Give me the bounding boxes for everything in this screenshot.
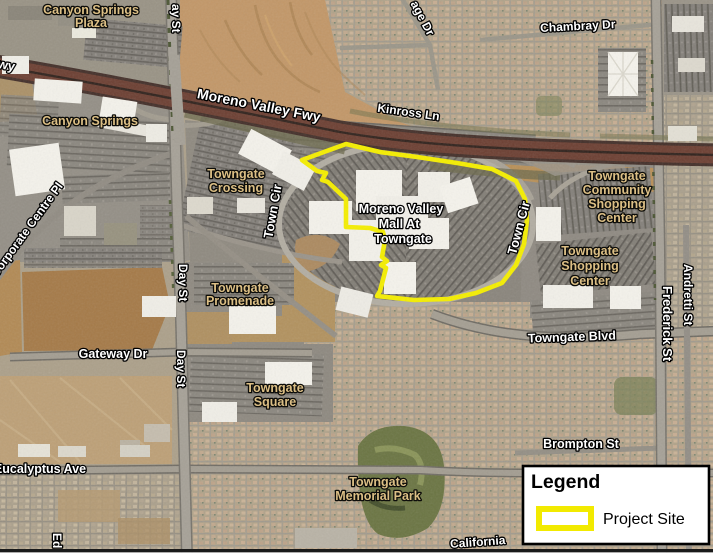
- svg-text:Center: Center: [570, 274, 610, 288]
- svg-text:Center: Center: [597, 211, 637, 225]
- svg-text:Towngate: Towngate: [588, 169, 645, 183]
- svg-text:Project Site: Project Site: [603, 511, 685, 528]
- svg-text:Crossing: Crossing: [209, 181, 263, 195]
- svg-text:Day St: Day St: [174, 350, 188, 387]
- svg-text:Moreno Valley: Moreno Valley: [359, 202, 444, 216]
- svg-text:Frederick St: Frederick St: [660, 286, 675, 362]
- svg-text:Memorial Park: Memorial Park: [335, 489, 421, 503]
- svg-text:Mall At: Mall At: [379, 217, 421, 231]
- svg-text:Community: Community: [583, 183, 652, 197]
- svg-text:Towngate: Towngate: [246, 381, 303, 395]
- svg-text:Shopping: Shopping: [561, 259, 619, 273]
- svg-text:Towngate: Towngate: [374, 232, 432, 246]
- svg-text:Canyon Springs: Canyon Springs: [42, 114, 138, 128]
- svg-text:Towngate: Towngate: [207, 167, 264, 181]
- svg-text:Day St: Day St: [176, 264, 190, 301]
- svg-text:Canyon Springs: Canyon Springs: [43, 3, 139, 17]
- svg-text:Brompton St: Brompton St: [543, 437, 620, 451]
- svg-text:Towngate: Towngate: [561, 244, 618, 258]
- svg-text:ay St: ay St: [169, 4, 183, 33]
- svg-text:Towngate: Towngate: [211, 281, 268, 295]
- svg-text:Square: Square: [254, 395, 296, 409]
- svg-text:Promenade: Promenade: [206, 294, 274, 308]
- svg-text:Shopping: Shopping: [588, 197, 646, 211]
- svg-text:Gateway Dr: Gateway Dr: [79, 347, 148, 361]
- svg-text:Plaza: Plaza: [75, 16, 108, 30]
- svg-text:Towngate: Towngate: [349, 475, 406, 489]
- svg-text:Ed: Ed: [50, 533, 64, 548]
- svg-text:Andretti St: Andretti St: [681, 264, 695, 325]
- svg-text:Eucalyptus Ave: Eucalyptus Ave: [0, 462, 86, 476]
- svg-text:Legend: Legend: [531, 471, 600, 493]
